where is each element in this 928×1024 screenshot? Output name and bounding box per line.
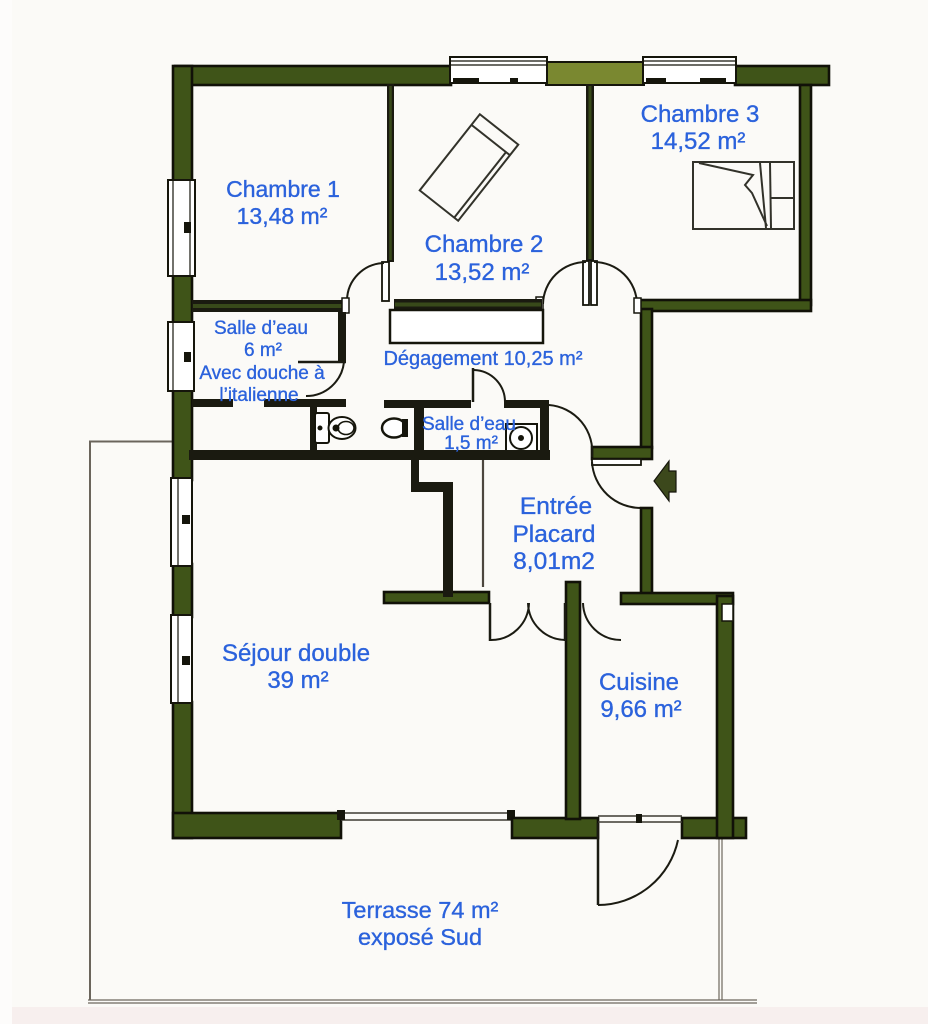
- svg-text:13,52 m²: 13,52 m²: [435, 259, 530, 286]
- svg-text:1,5 m²: 1,5 m²: [444, 433, 498, 454]
- svg-text:39 m²: 39 m²: [267, 667, 328, 694]
- svg-text:Dégagement 10,25 m²: Dégagement 10,25 m²: [383, 348, 582, 370]
- svg-text:Chambre 2: Chambre 2: [425, 231, 544, 258]
- svg-text:Cuisine: Cuisine: [599, 669, 679, 696]
- svg-text:9,66 m²: 9,66 m²: [600, 696, 681, 723]
- svg-text:Séjour double: Séjour double: [222, 640, 370, 667]
- svg-text:Avec douche à: Avec douche à: [199, 363, 325, 384]
- svg-text:Salle d’eau: Salle d’eau: [422, 414, 516, 435]
- svg-text:Entrée: Entrée: [520, 493, 592, 520]
- svg-text:Chambre 1: Chambre 1: [226, 176, 340, 202]
- svg-text:exposé Sud: exposé Sud: [358, 924, 482, 950]
- svg-text:6 m²: 6 m²: [244, 340, 282, 361]
- svg-text:8,01m2: 8,01m2: [513, 548, 595, 575]
- svg-text:13,48 m²: 13,48 m²: [237, 203, 328, 229]
- svg-text:l’italienne: l’italienne: [219, 385, 298, 406]
- svg-text:Placard: Placard: [512, 521, 595, 548]
- svg-text:Chambre 3: Chambre 3: [641, 101, 760, 128]
- svg-text:Salle d’eau: Salle d’eau: [214, 318, 308, 339]
- svg-text:14,52 m²: 14,52 m²: [651, 128, 746, 155]
- svg-text:Terrasse 74 m²: Terrasse 74 m²: [342, 897, 499, 923]
